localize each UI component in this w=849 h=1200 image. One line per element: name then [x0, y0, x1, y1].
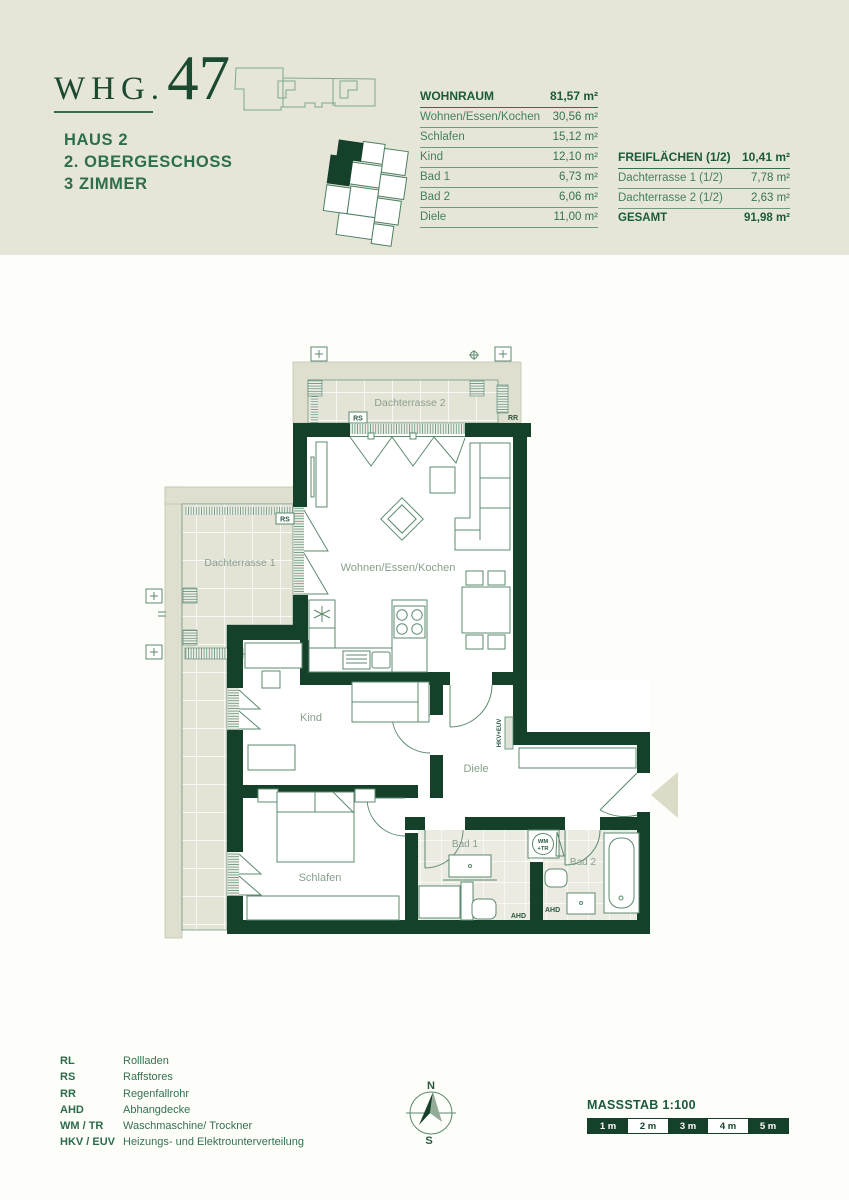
label-wohnen: Wohnen/Essen/Kochen: [341, 562, 456, 574]
dining-table: [462, 587, 510, 633]
kind-window: [228, 688, 239, 730]
scale-segment: 1 m: [588, 1119, 628, 1133]
tr-tag: +TR: [537, 846, 549, 852]
wardrobe: [245, 643, 302, 668]
washbasin: [567, 893, 595, 914]
label-diele: Diele: [463, 763, 488, 775]
rs-tag: RS: [280, 517, 290, 524]
shower: [419, 886, 460, 918]
armchair: [430, 467, 455, 493]
toilet: [545, 869, 567, 887]
compass: N S: [406, 1080, 456, 1147]
nightstand: [258, 789, 278, 802]
floorplan-sheet: WHG. 47 HAUS 2 2. OBERGESCHOSS 3 ZIMMER: [0, 0, 849, 1200]
scale-segments: 1 m 2 m 3 m 4 m 5 m: [587, 1118, 789, 1134]
nightstand: [355, 789, 375, 802]
label-dachterrasse1: Dachterrasse 1: [204, 557, 275, 569]
ahd-tag: AHD: [545, 907, 560, 914]
terrace-pillar: [308, 380, 322, 396]
rr-tag: RR: [508, 415, 518, 422]
toilet: [472, 899, 496, 919]
scale-segment: 5 m: [748, 1119, 788, 1133]
ahd-tag: AHD: [511, 913, 526, 920]
wm-tag: WM: [538, 839, 548, 845]
label-kind: Kind: [300, 712, 322, 724]
tv-board: [316, 442, 327, 507]
scale-segment: 4 m: [708, 1119, 748, 1133]
terrace-pillar: [470, 381, 484, 396]
compass-north-label: N: [427, 1080, 435, 1092]
wardrobe: [247, 896, 399, 920]
hall-closet: [519, 748, 636, 768]
hkv-panel: [505, 717, 513, 749]
legend-item: HKV / EUV Heizungs- und Elektrountervert…: [60, 1134, 304, 1150]
rr-downpipe: [497, 385, 508, 413]
scale-segment: 2 m: [628, 1119, 668, 1133]
entrance-arrow-icon: [651, 772, 678, 818]
scale-bar: MASSSTAB 1:100 1 m 2 m 3 m 4 m 5 m: [587, 1098, 789, 1134]
washbasin: [449, 855, 491, 877]
legend-item: WM / TR Waschmaschine/ Trockner: [60, 1118, 304, 1134]
desk: [248, 745, 295, 770]
legend: RL Rollladen RS Raffstores RR Regenfallr…: [60, 1053, 304, 1151]
scale-segment: 3 m: [668, 1119, 708, 1133]
compass-south-label: S: [425, 1135, 432, 1147]
legend-item: RS Raffstores: [60, 1069, 304, 1085]
rs-tag: RS: [353, 416, 363, 423]
schlafen-window: [228, 852, 239, 896]
legend-item: RL Rollladen: [60, 1053, 304, 1069]
floorplan-drawing: Dachterrasse 2 Dachterrasse 1 Wohnen/Ess…: [0, 0, 849, 1200]
label-bad2: Bad 2: [570, 857, 597, 868]
label-schlafen: Schlafen: [299, 872, 342, 884]
folding-door-sill: [348, 424, 465, 434]
legend-item: RR Regenfallrohr: [60, 1086, 304, 1102]
legend-item: AHD Abhangdecke: [60, 1102, 304, 1118]
wohnen-terrace-window: [294, 507, 304, 595]
hkv-euv-tag: HKV+EUV: [497, 719, 503, 748]
label-dachterrasse2: Dachterrasse 2: [374, 397, 445, 409]
scale-title: MASSSTAB 1:100: [587, 1098, 789, 1112]
label-bad1: Bad 1: [452, 839, 479, 850]
